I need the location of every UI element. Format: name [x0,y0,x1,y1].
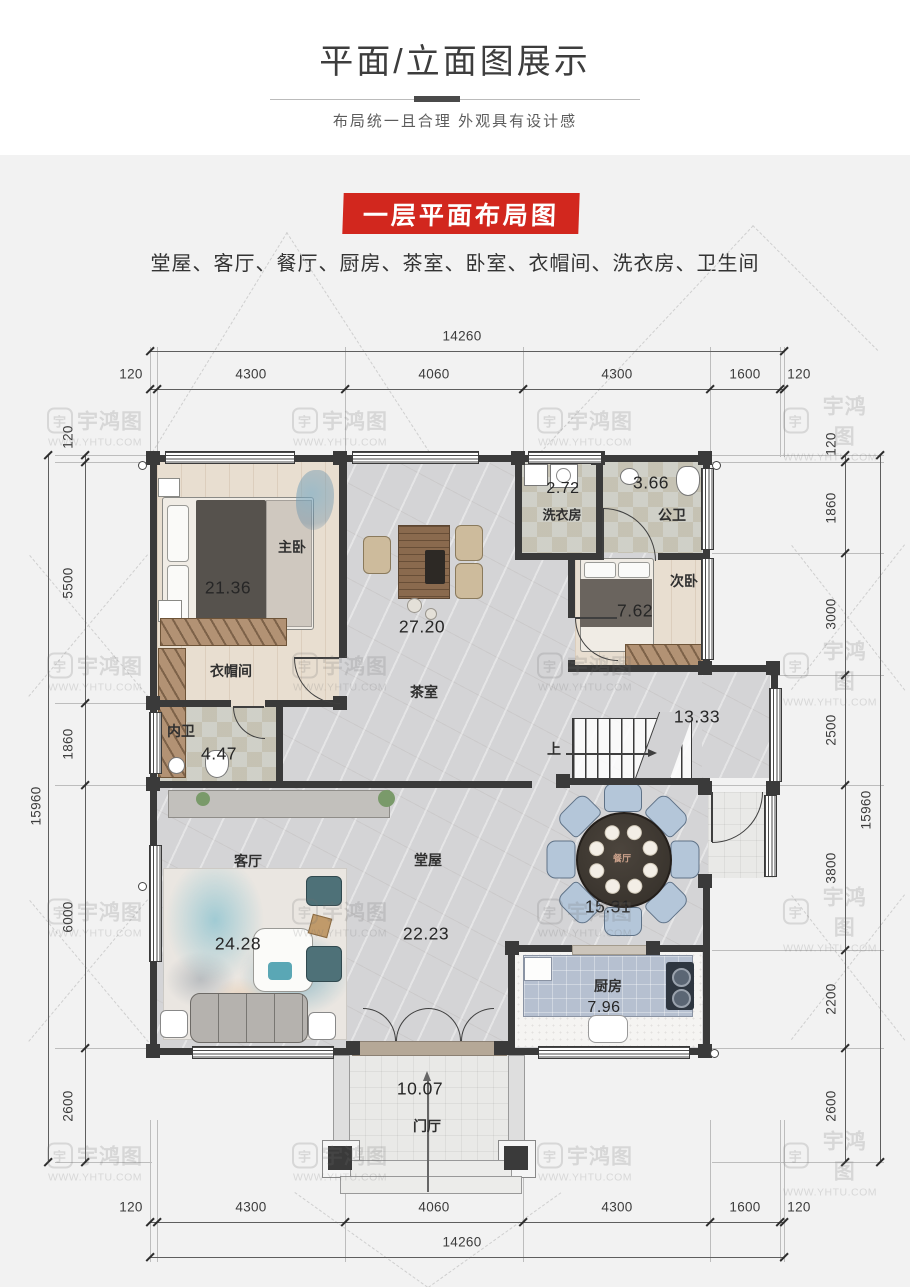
stairs-up-arrow-icon [648,749,657,757]
area-living-room: 24.28 [215,934,261,955]
dim-extension-line [55,455,152,456]
window-ensuite-left [149,712,162,774]
fridge [524,957,552,981]
dim-extension-line [157,1120,158,1262]
downspout-icon [138,882,147,891]
dim-extension-line [150,347,151,457]
plant-icon [378,790,395,807]
dim-right-seg: 2600 [824,1090,839,1121]
dim-top-seg: 4060 [418,367,449,382]
dim-extension-line [523,347,524,457]
dim-right-seg: 2200 [824,983,839,1014]
dim-line-top-chain [150,389,784,390]
window-sideporch-right [764,795,777,877]
dim-bottom-seg: 1600 [729,1200,760,1215]
coffee-table [253,928,313,992]
downspout-icon [138,461,147,470]
wall-pier [346,1041,360,1055]
dim-top-seg: 120 [119,367,142,382]
window-stairhall-right [769,688,782,782]
window-living-left [149,845,162,962]
wall-pier [646,941,660,955]
sofa-side-table [308,1012,336,1040]
window-tearoom-top [352,451,479,464]
armchair [306,946,342,982]
label-laundry: 洗衣房 [542,505,581,524]
wall-pier [698,874,712,888]
label-stairs-up: 上 [547,739,561,759]
dim-line-top-total [150,351,784,352]
dim-bottom-seg: 120 [787,1200,810,1215]
dim-extension-line [157,347,158,457]
area-ensuite-bath: 4.47 [201,744,237,765]
dim-extension-line [55,1162,152,1163]
dining-chair [671,841,700,879]
dim-extension-line [784,347,785,457]
label-public-bath: 公卫 [658,505,686,525]
label-ensuite-bath: 内卫 [167,721,195,741]
master-bedroom-door-leaf [294,657,339,659]
dim-extension-line [780,1120,781,1262]
wall-pier [698,451,712,465]
bed-duvet [196,500,266,625]
wall-stairs-bottom [562,778,710,785]
bed-pillow [618,562,650,578]
label-cloakroom: 衣帽间 [210,661,252,681]
window-living-bottom [192,1046,334,1059]
dim-extension-line [55,703,152,704]
armchair [306,876,342,906]
window-publicbath-right [701,468,714,550]
wall-master-right [339,462,347,658]
wall-pier [766,781,780,795]
label-foyer: 门厅 [413,1116,441,1136]
label-second-bedroom: 次卧 [670,571,698,591]
dim-left-seg: 2600 [61,1090,76,1121]
window-master-top [165,451,295,464]
stove-burner [672,989,691,1008]
dim-extension-line [55,785,152,786]
tea-chair [363,536,391,574]
area-main-hall: 22.23 [403,924,449,945]
wall-living-top [150,781,532,788]
label-main-hall: 堂屋 [414,850,442,870]
bed-pillow [584,562,616,578]
wall-bath-bottom-a [515,553,603,560]
wall-pier [494,1041,508,1055]
area-kitchen: 7.96 [587,999,620,1017]
dim-extension-line [712,1048,884,1049]
wall-pier [505,941,519,955]
dim-extension-line [712,1162,884,1163]
kitchen-sink [588,1015,628,1043]
dim-extension-line [784,1120,785,1262]
area-stair-hall: 13.33 [674,707,720,728]
dim-line-right-total [880,455,881,1162]
dim-extension-line [345,347,346,457]
label-living-room: 客厅 [234,851,262,871]
dim-right-seg: 120 [824,432,839,455]
dim-extension-line [710,347,711,457]
wall-pier [766,661,780,675]
wall-pier [556,774,570,788]
wall-pier [146,451,160,465]
stairs-up-arrow-line [566,753,648,755]
dining-table-label: 餐厅 [613,852,631,865]
dim-bottom-seg: 120 [119,1200,142,1215]
dim-line-bottom-chain [150,1222,784,1223]
dim-line-left-total [48,455,49,1162]
wall-pier [146,1044,160,1058]
porch-column [504,1146,528,1170]
wall-pier [146,696,160,710]
dim-line-right-chain [845,455,846,1162]
dim-bottom-seg: 4300 [601,1200,632,1215]
area-master-bedroom: 21.36 [205,578,251,599]
dim-extension-line [712,455,884,456]
public-bath-door-leaf [602,508,604,560]
dim-top-seg: 120 [787,367,810,382]
area-public-bath: 3.66 [633,473,669,494]
dim-bottom-seg: 4300 [235,1200,266,1215]
area-second-bedroom: 7.62 [617,601,653,622]
window-secondbed-right [701,558,714,660]
page-subtitle: 布局统一且合理 外观具有设计感 [0,110,910,131]
dim-top-seg: 4300 [235,367,266,382]
plant-icon [196,792,210,806]
tea-chair [455,525,483,561]
coffee-table-tray [268,962,292,980]
dim-line-left-chain [85,455,86,1162]
wall-ensuite-right [276,707,283,788]
dim-right-seg: 2500 [824,714,839,745]
wall-right-lower [703,878,710,1055]
floor-plan-page: 平面/立面图展示 布局统一且合理 外观具有设计感 一层平面布局图 堂屋、客厅、餐… [0,0,910,1287]
wall-pier [146,777,160,791]
dim-right-seg: 3000 [824,598,839,629]
wall-pier [698,781,712,795]
dim-right-seg: 1860 [824,492,839,523]
dim-extension-line [712,950,884,951]
stove-burner [672,968,691,987]
sofa [190,993,308,1043]
title-divider-accent [414,96,460,102]
wall-secondbed-left-a [568,560,575,618]
dim-extension-line [780,347,781,457]
tea-chair [455,563,483,599]
wall-pier [698,661,712,675]
dim-left-seg: 5500 [61,567,76,598]
area-dining: 15.31 [585,897,631,918]
porch-column [328,1146,352,1170]
wall-secondbed-bottom [568,665,710,672]
porch-step [340,1176,522,1194]
dim-extension-line [150,1120,151,1262]
dim-top-seg: 4300 [601,367,632,382]
tea-stool [407,598,422,613]
downspout-icon [710,1049,719,1058]
dim-extension-line [712,462,884,463]
label-master-bedroom: 主卧 [278,537,306,557]
dim-top-total: 14260 [442,329,481,344]
nightstand [158,478,180,497]
wall-kitchen-left [508,945,515,1048]
wall-pier [511,451,525,465]
second-bedroom-door-leaf [575,617,617,619]
wall-cloak-bottom-a [150,700,231,707]
laundry-sink [524,464,548,486]
kitchen-threshold [572,945,652,955]
sofa-side-table [160,1010,188,1038]
side-porch-door-leaf [711,792,713,842]
area-laundry: 2.72 [546,480,579,498]
wall-pier [333,451,347,465]
dim-extension-line [55,1048,152,1049]
dim-left-seg: 120 [61,425,76,448]
dim-extension-line [712,785,884,786]
dim-bottom-total: 14260 [442,1235,481,1250]
toilet [676,466,700,496]
room-list: 堂屋、客厅、餐厅、厨房、茶室、卧室、衣帽间、洗衣房、卫生间 [0,247,910,276]
dim-bottom-seg: 4060 [418,1200,449,1215]
window-kitchen-bottom [538,1046,690,1059]
tea-tray [425,550,445,584]
dim-right-total: 15960 [859,790,874,829]
entry-threshold [352,1041,507,1056]
cloakroom-dresser [160,618,287,646]
ensuite-door-leaf [233,706,264,708]
dining-chair [604,783,642,812]
dim-extension-line [712,553,884,554]
downspout-icon [712,461,721,470]
dim-left-seg: 1860 [61,728,76,759]
dim-right-seg: 3800 [824,852,839,883]
area-tea-room: 27.20 [399,617,445,638]
area-foyer: 10.07 [397,1079,443,1100]
window-laundry-top [528,451,602,464]
dim-line-bottom-total [150,1257,784,1258]
bed-pillow [167,505,189,562]
dim-left-seg: 6000 [61,901,76,932]
dining-chair [547,841,576,879]
label-kitchen: 厨房 [594,976,622,996]
bathroom-sink [168,757,185,774]
dim-left-total: 15960 [29,786,44,825]
section-banner: 一层平面布局图 [342,193,579,234]
wall-laundry-left [515,462,522,560]
label-tea-room: 茶室 [410,682,438,702]
dim-extension-line [710,1120,711,1262]
dim-top-seg: 1600 [729,367,760,382]
page-title: 平面/立面图展示 [0,34,910,83]
